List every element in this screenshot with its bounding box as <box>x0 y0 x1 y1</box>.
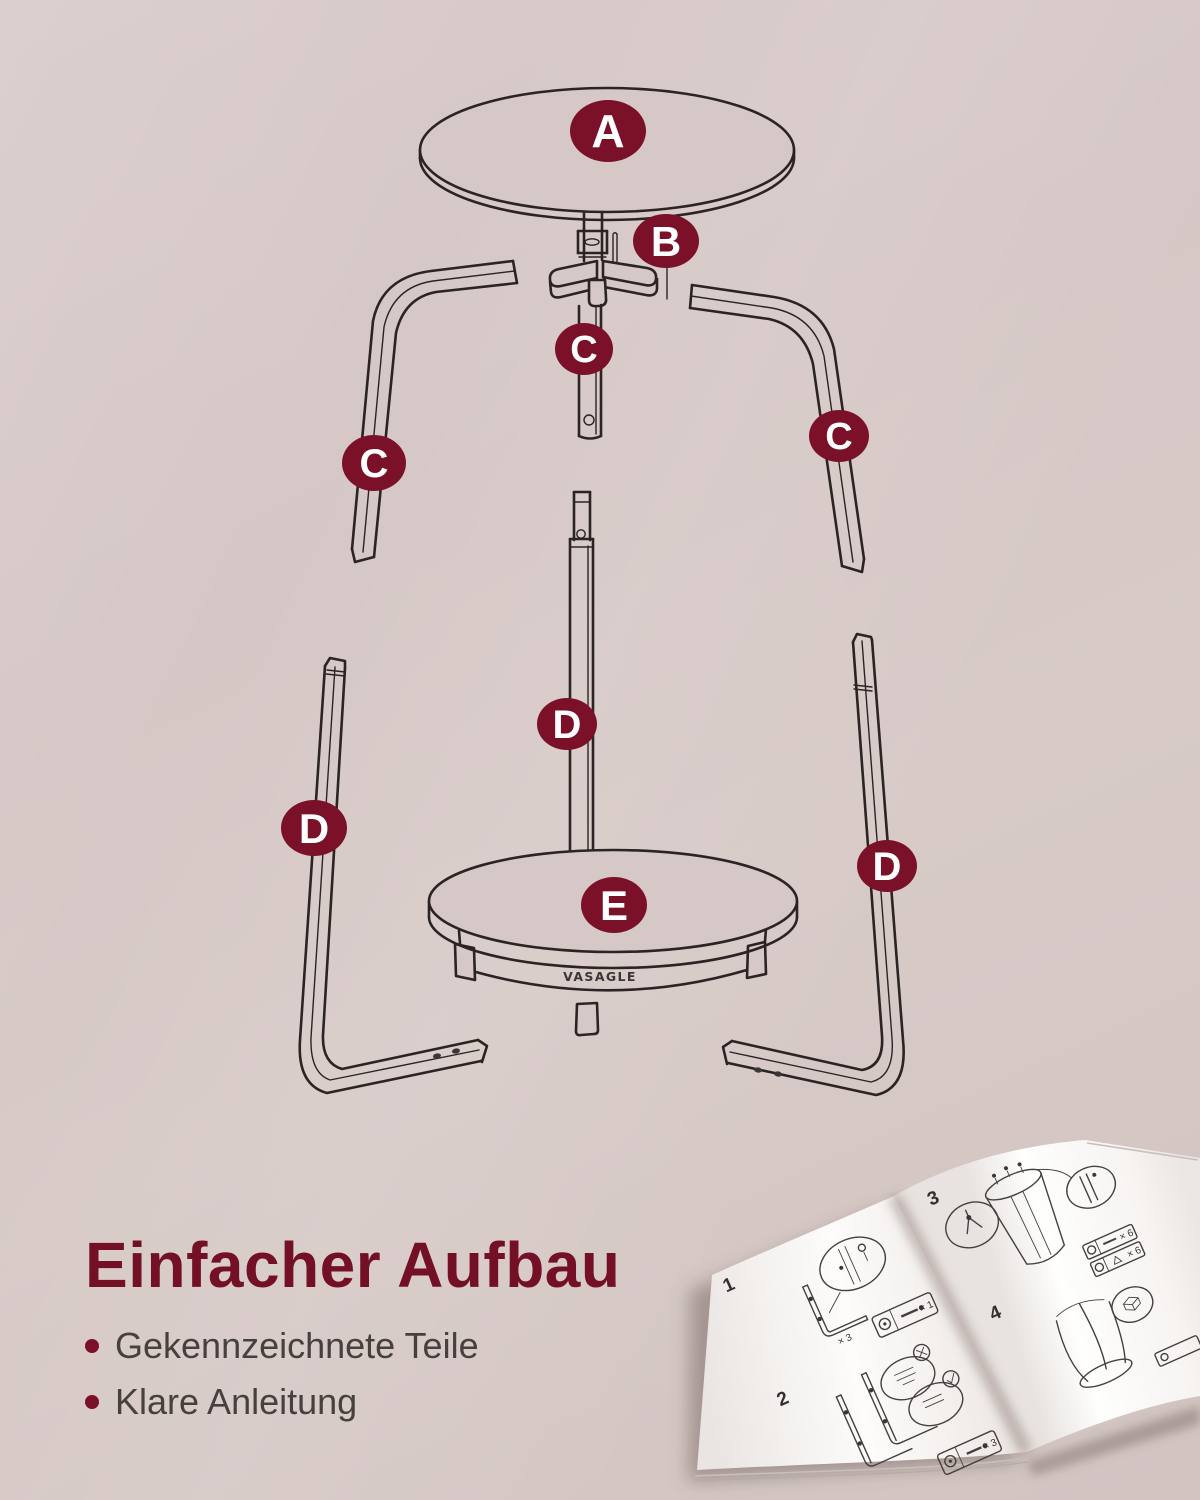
svg-text:C: C <box>825 416 852 458</box>
badge-d-left: D <box>281 800 347 856</box>
part-upper-leg-left <box>352 261 517 562</box>
svg-text:C: C <box>360 442 389 486</box>
badge-c-right: C <box>809 410 869 462</box>
brand-logo: VASAGLE <box>563 969 637 984</box>
instruction-manual: 1 × 3 <box>688 1110 1200 1500</box>
svg-text:D: D <box>553 703 582 747</box>
caption-block: Einfacher Aufbau Gekennzeichnete Teile K… <box>85 1232 620 1437</box>
bullet-dot-icon <box>85 1339 99 1353</box>
badge-c-center: C <box>555 323 613 375</box>
badge-c-left: C <box>342 435 406 491</box>
svg-text:B: B <box>651 218 681 265</box>
product-assembly-graphic: { "image": { "width": 1200, "height": 15… <box>0 0 1200 1500</box>
part-badges: A B C C C D D D <box>281 100 917 933</box>
caption-bullet-2-label: Klare Anleitung <box>115 1381 357 1423</box>
badge-a: A <box>570 100 646 162</box>
badge-d-right: D <box>857 840 917 892</box>
badge-d-center: D <box>537 698 597 750</box>
part-lower-pole <box>570 492 593 856</box>
caption-bullet-list: Gekennzeichnete Teile Klare Anleitung <box>85 1325 620 1423</box>
badge-e: E <box>581 877 647 933</box>
svg-text:C: C <box>570 329 597 371</box>
caption-bullet-1: Gekennzeichnete Teile <box>85 1325 620 1367</box>
caption-bullet-1-label: Gekennzeichnete Teile <box>115 1325 479 1367</box>
bullet-dot-icon <box>85 1395 99 1409</box>
badge-b: B <box>633 214 699 268</box>
caption-bullet-2: Klare Anleitung <box>85 1381 620 1423</box>
svg-text:D: D <box>299 805 329 852</box>
svg-text:A: A <box>591 105 624 157</box>
svg-text:D: D <box>873 845 902 889</box>
svg-text:E: E <box>600 882 628 929</box>
caption-heading: Einfacher Aufbau <box>85 1232 620 1299</box>
